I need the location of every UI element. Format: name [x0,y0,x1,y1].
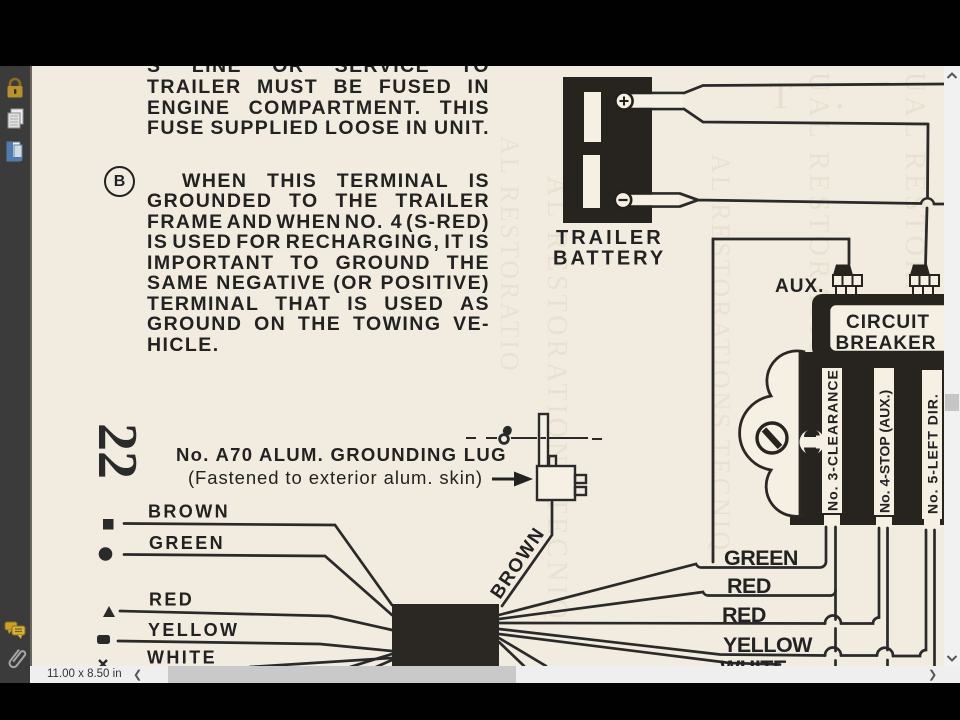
svg-text:WHITE: WHITE [147,648,217,667]
svg-text:YELLOW: YELLOW [148,620,239,640]
svg-text:WHITE: WHITE [720,656,787,666]
svg-text:GREEN: GREEN [149,533,225,553]
svg-text:BATTERY: BATTERY [553,248,666,270]
svg-text:GREEN: GREEN [724,546,798,570]
svg-text:No. 5-LEFT DIR.: No. 5-LEFT DIR. [925,393,941,514]
svg-text:CIRCUIT: CIRCUIT [846,312,930,333]
svg-text:YELLOW: YELLOW [723,633,813,657]
svg-text:TRAILER: TRAILER [556,227,664,249]
svg-text:RED: RED [149,590,194,610]
svg-text:BREAKER: BREAKER [836,333,937,354]
svg-text:AUX.: AUX. [775,276,824,297]
svg-text:No. A70 ALUM. GROUNDING LUG: No. A70 ALUM. GROUNDING LUG [176,444,507,465]
svg-text:No. 4-STOP (AUX.): No. 4-STOP (AUX.) [877,390,893,513]
svg-text:RED: RED [727,574,771,598]
svg-text:No. 3-CLEARANCE: No. 3-CLEARANCE [825,369,841,511]
svg-text:BROWN: BROWN [148,502,230,522]
svg-text:RED: RED [722,603,766,627]
svg-text:BROWN: BROWN [487,524,550,603]
svg-text:(Fastened to exterior alum. sk: (Fastened to exterior alum. skin) [188,467,483,488]
